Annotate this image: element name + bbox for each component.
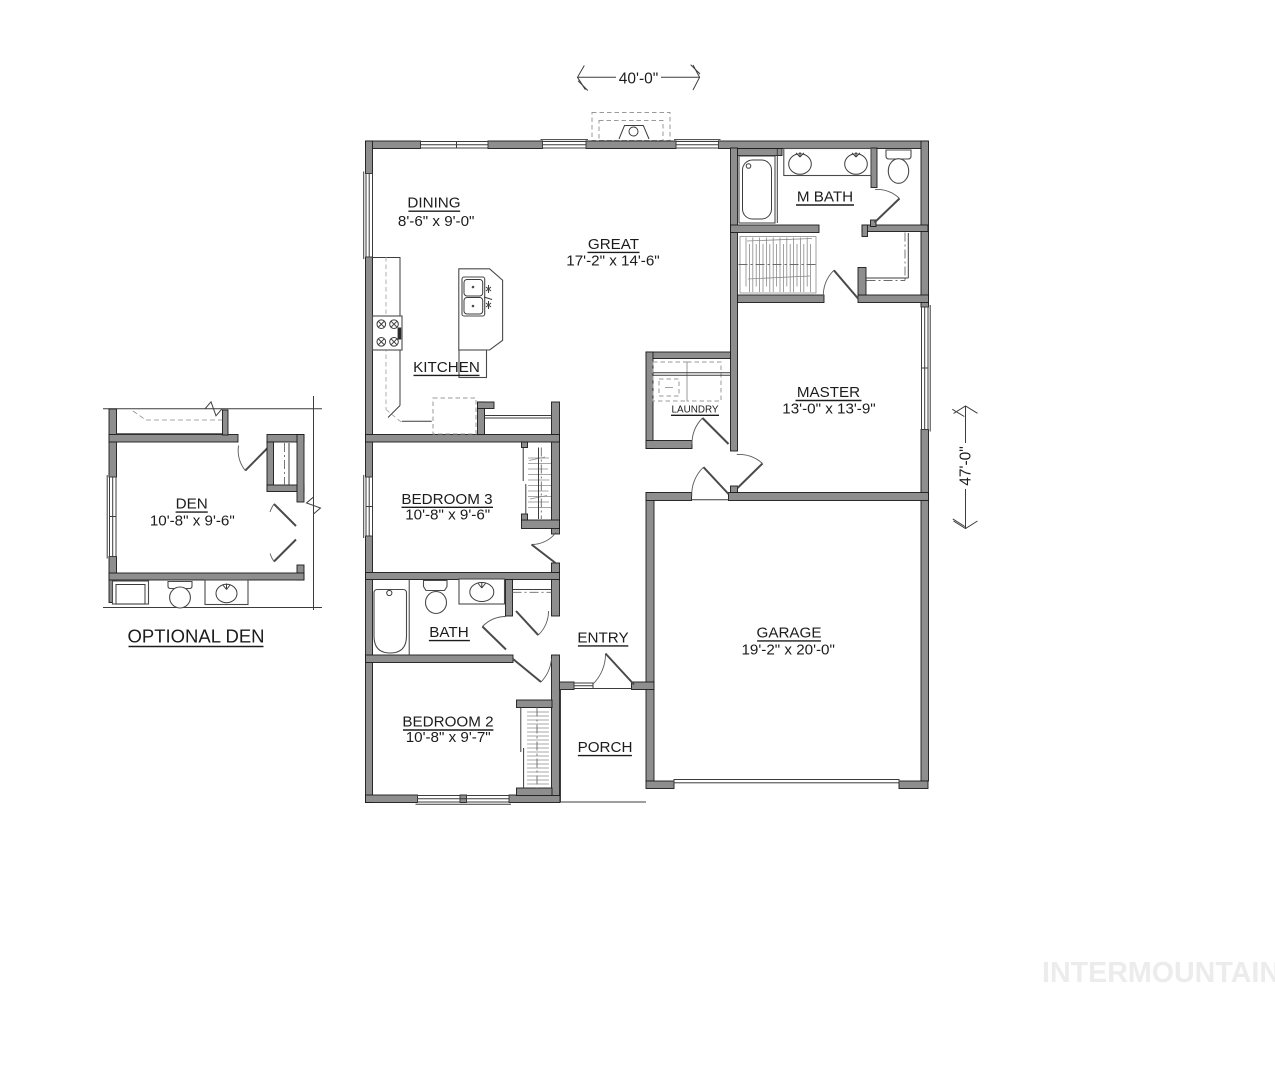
svg-text:17'-2" x 14'-6": 17'-2" x 14'-6" [566, 252, 659, 269]
svg-text:BEDROOM 3: BEDROOM 3 [401, 491, 492, 508]
svg-text:10'-8" x 9'-6": 10'-8" x 9'-6" [150, 513, 235, 530]
svg-text:ENTRY: ENTRY [577, 629, 628, 646]
svg-text:40'-0": 40'-0" [619, 70, 658, 87]
svg-text:MASTER: MASTER [797, 384, 860, 401]
svg-text:PORCH: PORCH [578, 739, 633, 756]
svg-text:GARAGE: GARAGE [757, 624, 822, 641]
svg-text:BATH: BATH [429, 624, 468, 641]
svg-text:10'-8" x 9'-6": 10'-8" x 9'-6" [405, 507, 490, 524]
svg-text:DINING: DINING [407, 195, 460, 212]
svg-text:INTERMOUNTAIN: INTERMOUNTAIN [1042, 957, 1275, 989]
svg-text:GREAT: GREAT [588, 236, 639, 253]
svg-text:10'-8" x 9'-7": 10'-8" x 9'-7" [406, 729, 491, 746]
svg-text:OPTIONAL DEN: OPTIONAL DEN [127, 625, 264, 646]
svg-text:8'-6" x 9'-0": 8'-6" x 9'-0" [398, 213, 475, 230]
svg-text:47'-0": 47'-0" [958, 446, 975, 485]
svg-text:KITCHEN: KITCHEN [413, 359, 480, 376]
svg-text:19'-2" x 20'-0": 19'-2" x 20'-0" [741, 642, 834, 659]
svg-text:LAUNDRY: LAUNDRY [672, 404, 719, 416]
svg-text:M BATH: M BATH [797, 189, 853, 206]
svg-text:DEN: DEN [176, 496, 208, 513]
svg-text:13'-0" x 13'-9": 13'-0" x 13'-9" [782, 400, 875, 417]
